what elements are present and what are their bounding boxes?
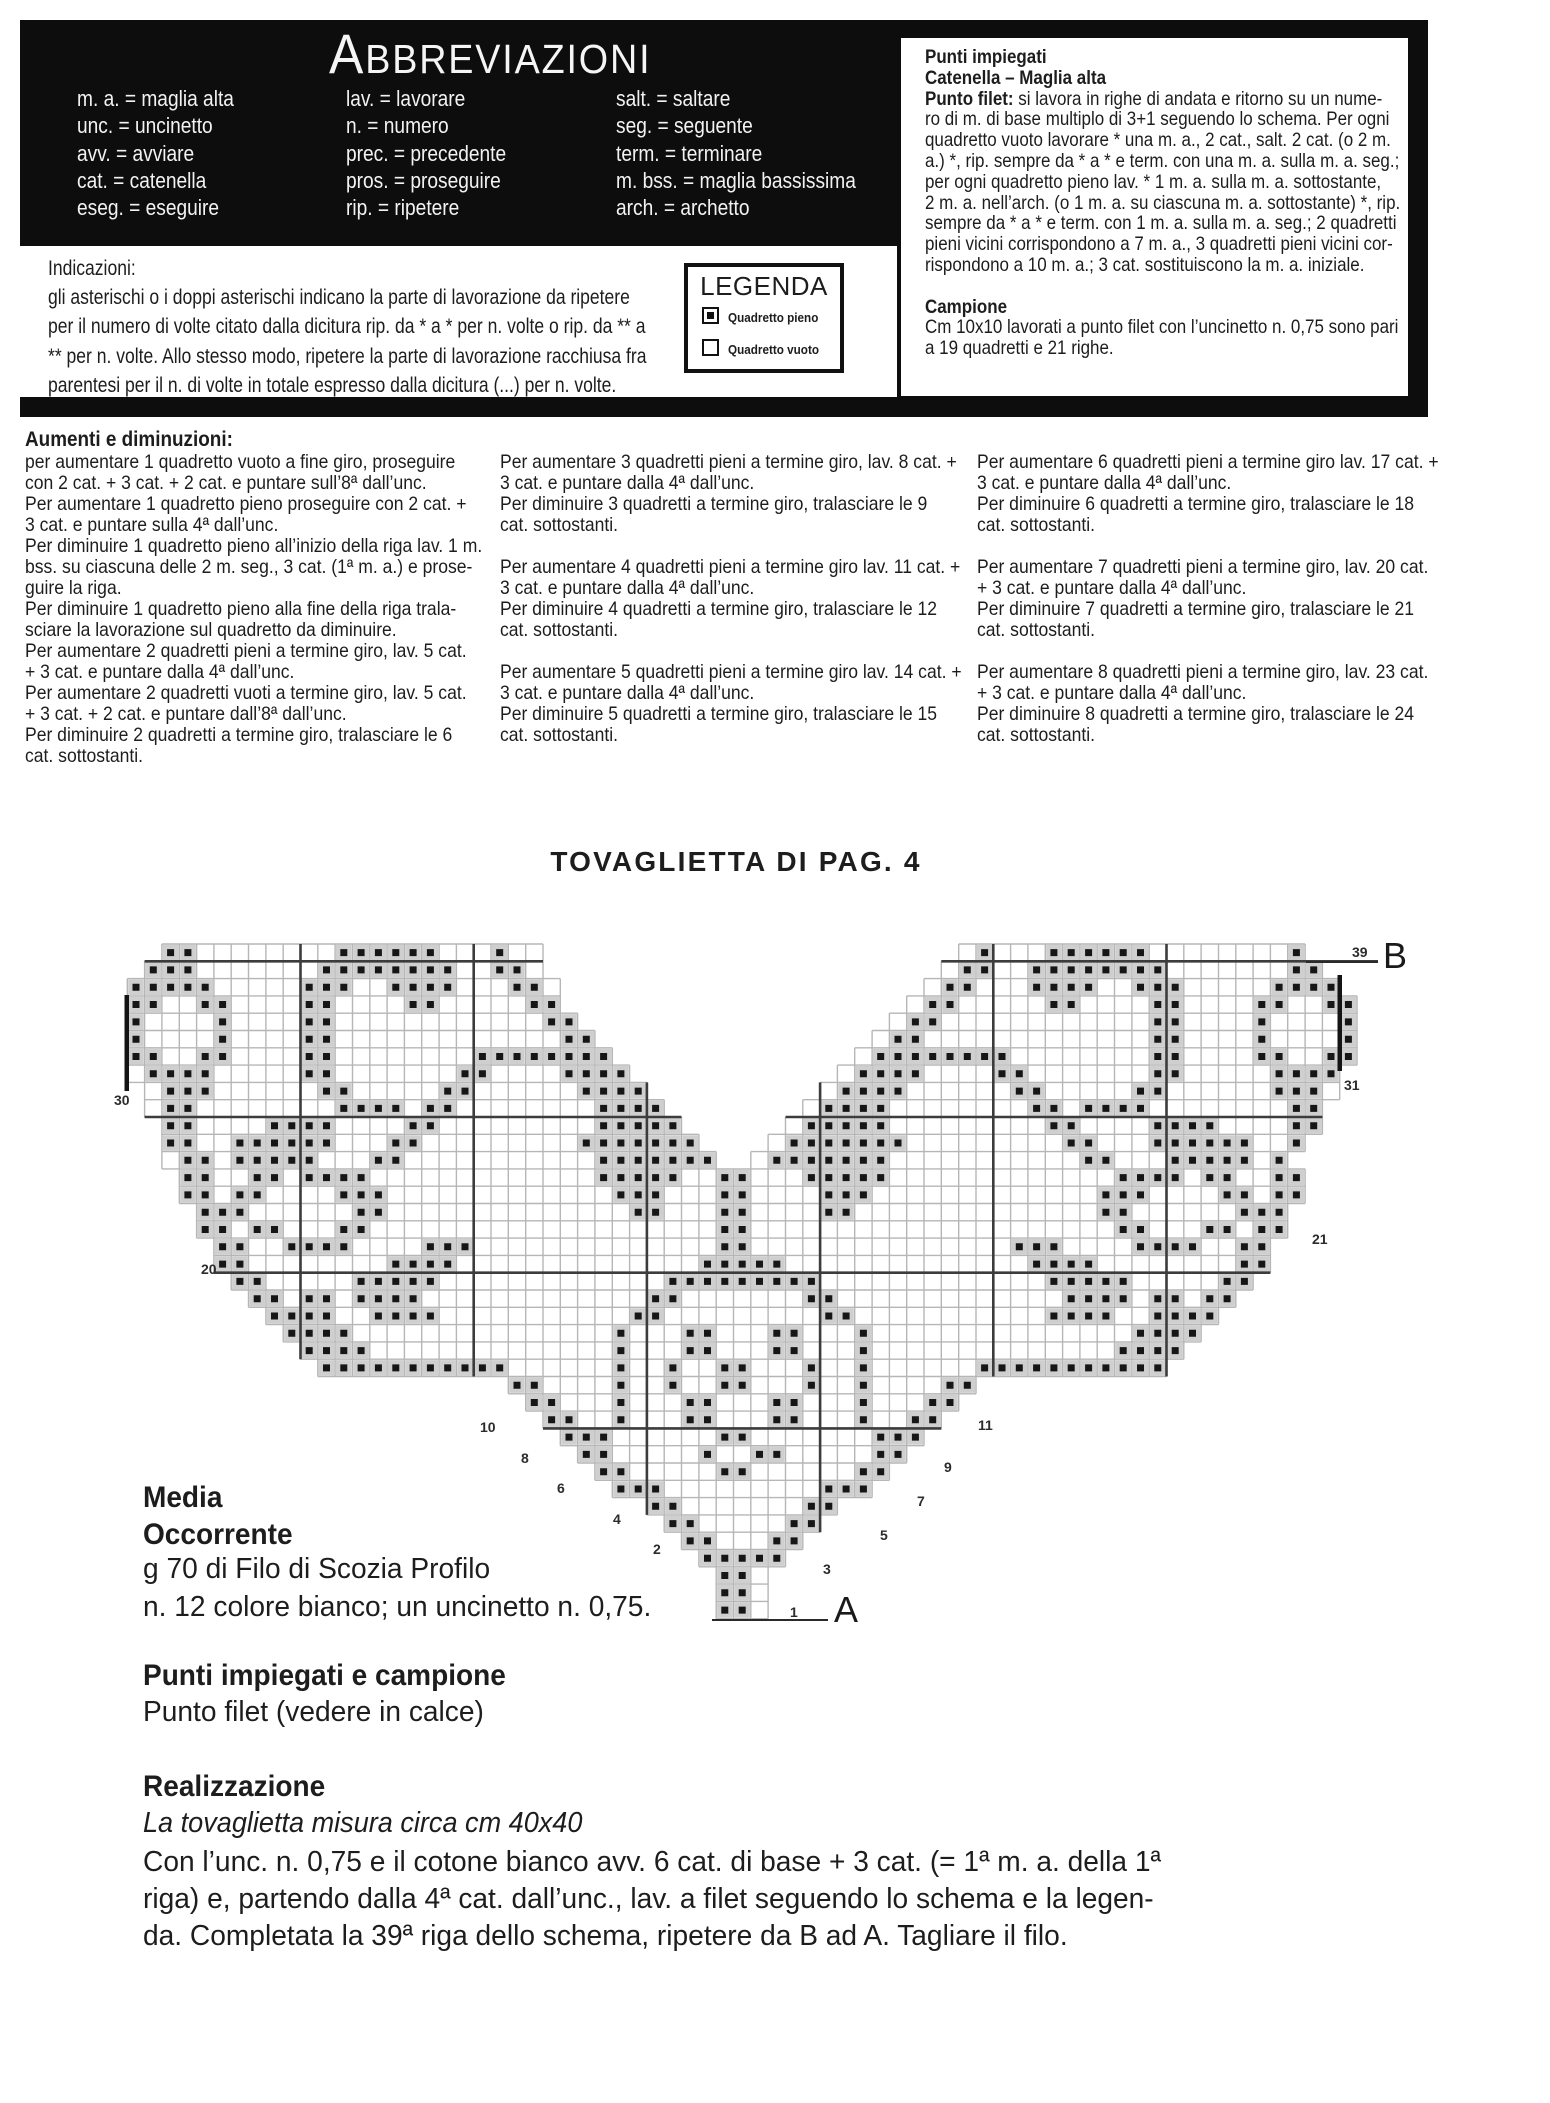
svg-text:7: 7 [917, 1493, 925, 1509]
svg-text:A: A [834, 1589, 858, 1630]
svg-text:10: 10 [480, 1419, 496, 1435]
svg-text:3: 3 [823, 1561, 831, 1577]
svg-text:2: 2 [653, 1541, 661, 1557]
svg-text:8: 8 [521, 1450, 529, 1466]
svg-text:20: 20 [201, 1261, 217, 1277]
svg-text:30: 30 [114, 1092, 130, 1108]
svg-text:9: 9 [944, 1459, 952, 1475]
svg-text:4: 4 [613, 1511, 621, 1527]
svg-text:1: 1 [790, 1604, 798, 1620]
svg-text:6: 6 [557, 1480, 565, 1496]
svg-text:B: B [1383, 935, 1407, 976]
svg-text:11: 11 [978, 1417, 993, 1433]
svg-text:31: 31 [1344, 1077, 1360, 1093]
svg-text:5: 5 [880, 1527, 888, 1543]
svg-text:21: 21 [1312, 1231, 1328, 1247]
svg-text:39: 39 [1352, 944, 1368, 960]
